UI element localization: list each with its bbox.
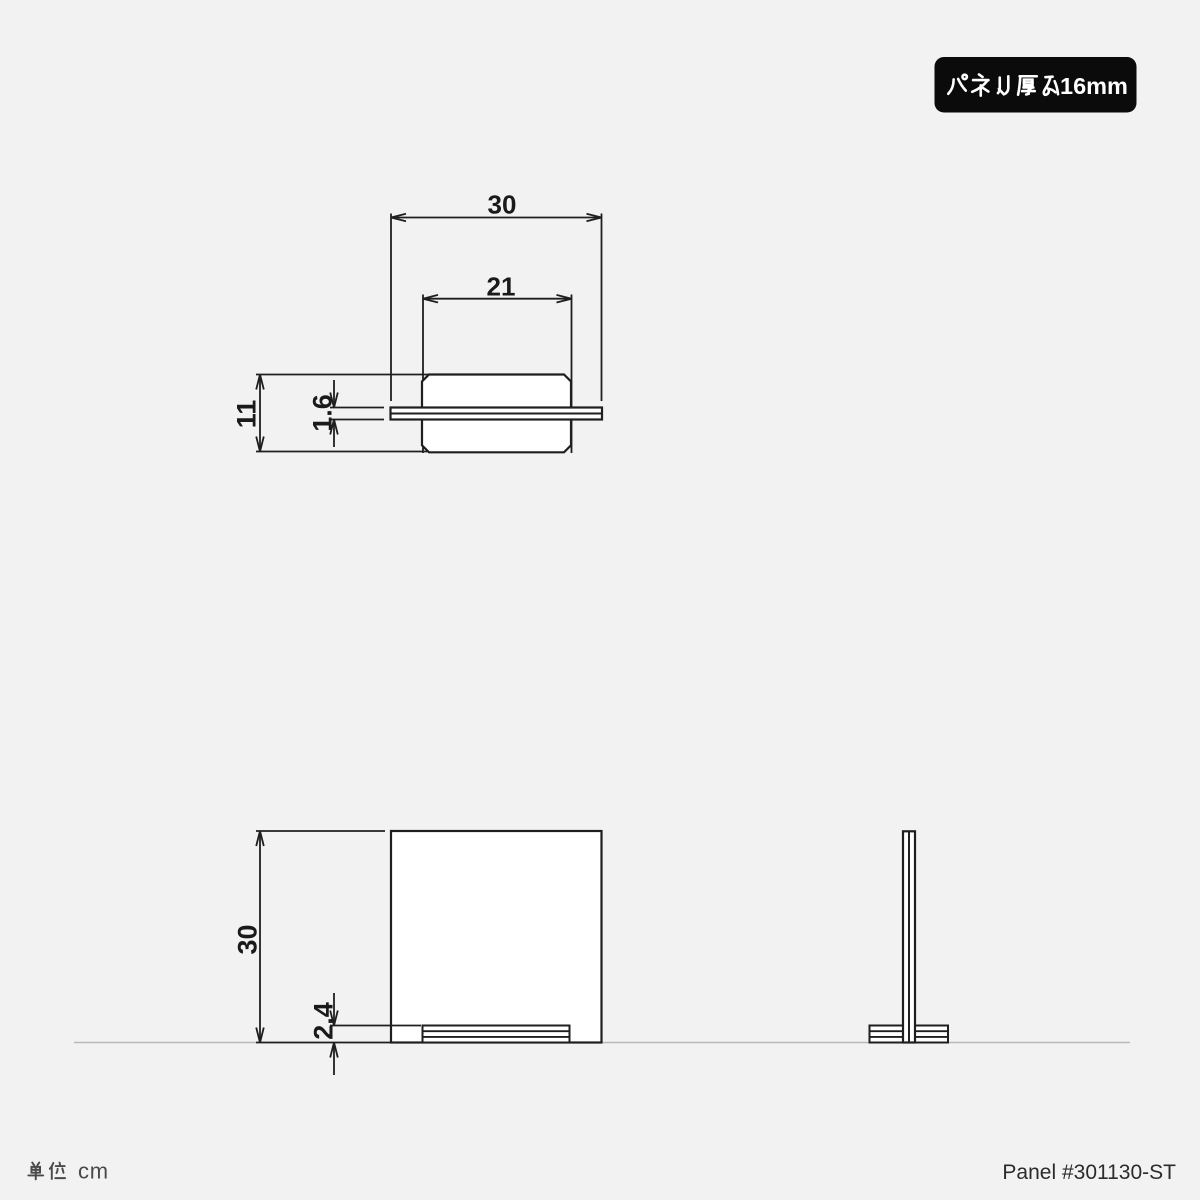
svg-text:30: 30 <box>488 190 517 220</box>
svg-text:11: 11 <box>232 400 262 429</box>
svg-text:30: 30 <box>233 924 263 954</box>
svg-text:16mm: 16mm <box>1060 73 1128 99</box>
svg-text:Panel #301130-ST: Panel #301130-ST <box>1002 1161 1176 1184</box>
svg-text:21: 21 <box>487 272 516 302</box>
svg-text:2.4: 2.4 <box>309 1002 339 1040</box>
svg-text:1.6: 1.6 <box>308 394 338 432</box>
svg-text:cm: cm <box>78 1159 109 1184</box>
